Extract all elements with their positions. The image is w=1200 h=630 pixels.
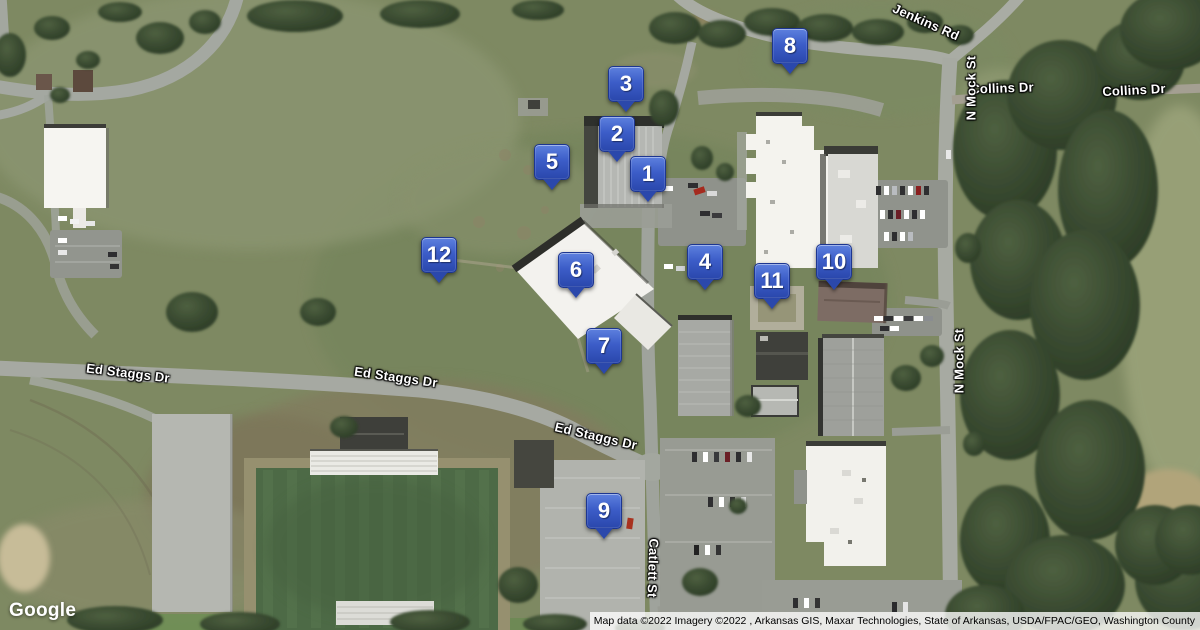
marker-number: 11 — [760, 268, 783, 294]
map-marker-4[interactable]: 4 — [687, 244, 723, 280]
road-label: N Mock St — [952, 329, 967, 394]
marker-number: 8 — [784, 33, 796, 59]
road-label: Collins Dr — [970, 79, 1034, 96]
map-marker-2[interactable]: 2 — [599, 116, 635, 152]
marker-number: 6 — [570, 257, 582, 283]
satellite-map-canvas[interactable]: Jenkins RdCollins DrCollins DrN Mock StN… — [0, 0, 1200, 630]
marker-number: 12 — [427, 242, 451, 268]
map-marker-12[interactable]: 12 — [421, 237, 457, 273]
map-marker-5[interactable]: 5 — [534, 144, 570, 180]
road-label: Catlett St — [644, 538, 661, 598]
map-marker-10[interactable]: 10 — [816, 244, 852, 280]
marker-number: 2 — [611, 121, 623, 147]
marker-number: 7 — [598, 333, 610, 359]
marker-number: 9 — [598, 498, 610, 524]
marker-number: 4 — [699, 249, 711, 275]
map-marker-1[interactable]: 1 — [630, 156, 666, 192]
marker-number: 3 — [620, 71, 632, 97]
map-attribution: Map data ©2022 Imagery ©2022 , Arkansas … — [590, 612, 1200, 630]
road-label: N Mock St — [964, 56, 979, 121]
map-marker-3[interactable]: 3 — [608, 66, 644, 102]
map-marker-6[interactable]: 6 — [558, 252, 594, 288]
map-marker-11[interactable]: 11 — [754, 263, 790, 299]
map-marker-8[interactable]: 8 — [772, 28, 808, 64]
marker-number: 10 — [822, 249, 846, 275]
map-marker-9[interactable]: 9 — [586, 493, 622, 529]
google-logo[interactable]: Google — [9, 600, 76, 622]
marker-number: 5 — [546, 149, 558, 175]
marker-number: 1 — [642, 161, 654, 187]
map-marker-7[interactable]: 7 — [586, 328, 622, 364]
